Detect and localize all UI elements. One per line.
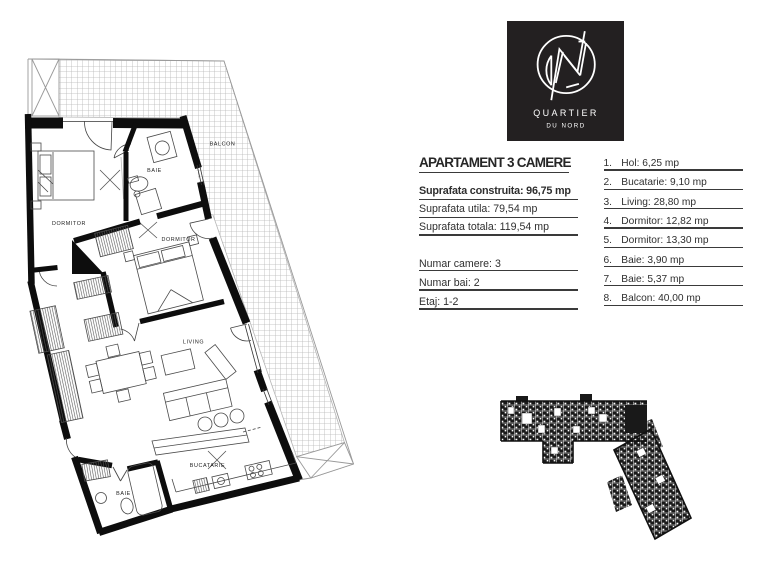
- svg-text:DORMITOR: DORMITOR: [161, 237, 195, 243]
- svg-text:BAIE: BAIE: [116, 491, 131, 497]
- svg-text:BALCON: BALCON: [210, 142, 236, 148]
- svg-text:BUCATARIE: BUCATARIE: [190, 463, 225, 469]
- svg-text:DORMITOR: DORMITOR: [52, 221, 86, 227]
- svg-text:BAIE: BAIE: [147, 168, 162, 174]
- svg-text:LIVING: LIVING: [183, 340, 204, 346]
